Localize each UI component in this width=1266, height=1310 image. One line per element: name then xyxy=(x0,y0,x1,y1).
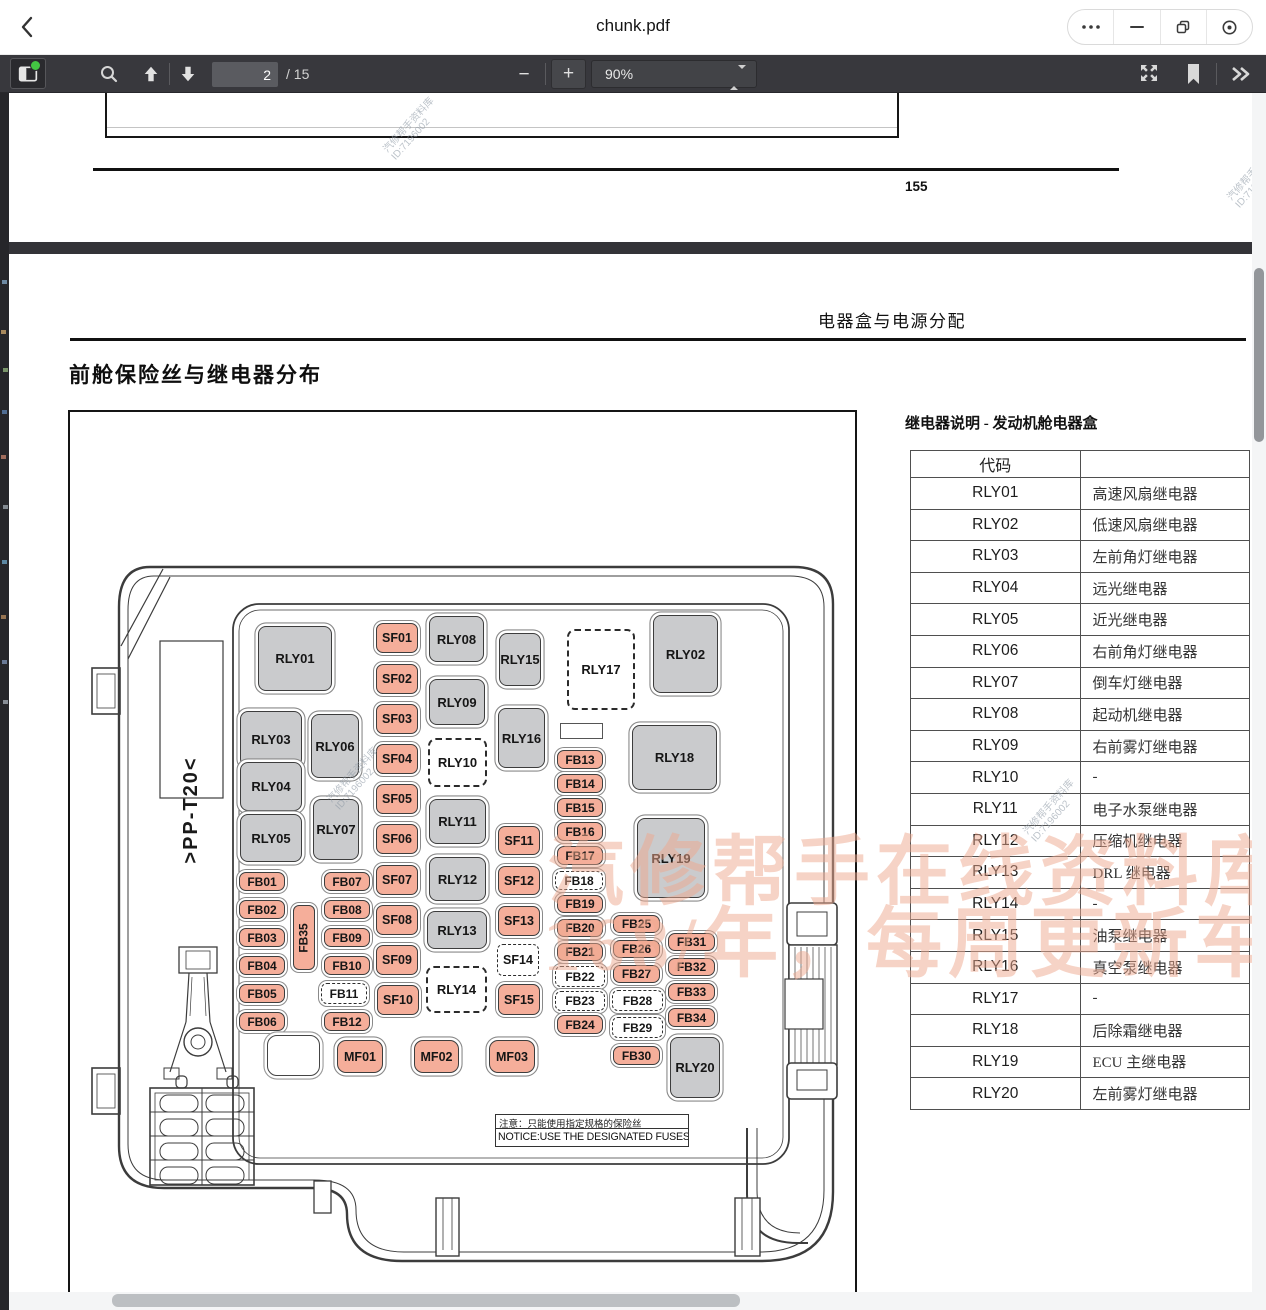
relay-table-row: RLY15油泵继电器 xyxy=(911,920,1250,952)
page1-table-remnant xyxy=(105,86,899,138)
arrow-up-icon xyxy=(142,64,160,84)
connector-side-label: >PP-T20< xyxy=(180,695,200,925)
relay-desc-cell: 电子水泵继电器 xyxy=(1080,793,1250,825)
toolbar-divider xyxy=(169,63,170,85)
zoom-out-button[interactable]: − xyxy=(511,62,537,87)
relay-table-row: RLY01高速风扇继电器 xyxy=(911,478,1250,510)
zoom-level-select[interactable]: 90% xyxy=(591,60,757,88)
relay-desc-cell: 高速风扇继电器 xyxy=(1080,478,1250,510)
relay-desc-cell: 近光继电器 xyxy=(1080,604,1250,636)
app-window: chunk.pdf xyxy=(0,0,1266,1310)
relay-desc-cell: 压缩机继电器 xyxy=(1080,825,1250,857)
search-button[interactable] xyxy=(97,62,121,86)
relay-desc-cell: 后除霜继电器 xyxy=(1080,1015,1250,1047)
relay-table-row: RLY10- xyxy=(911,762,1250,794)
vertical-scrollbar[interactable] xyxy=(1252,93,1266,1310)
page-total-label: / 15 xyxy=(286,66,309,82)
thumbnail-sidebar-sliver[interactable] xyxy=(0,93,9,1310)
chapter-header-rule xyxy=(70,338,1246,341)
notice-box: 注意：只能使用指定规格的保险丝 NOTICE:USE THE DESIGNATE… xyxy=(495,1114,689,1147)
relay-table-row: RLY17- xyxy=(911,983,1250,1015)
minimize-button[interactable] xyxy=(1113,10,1159,44)
relay-table-row: RLY06右前角灯继电器 xyxy=(911,635,1250,667)
relay-desc-cell: - xyxy=(1080,762,1250,794)
relay-table-row: RLY19ECU 主继电器 xyxy=(911,1046,1250,1078)
notification-dot xyxy=(30,60,41,71)
relay-code-cell: RLY11 xyxy=(911,793,1081,825)
relay-table-row: RLY16真空泵继电器 xyxy=(911,951,1250,983)
chapter-header: 电器盒与电源分配 xyxy=(818,307,966,332)
relay-desc-cell: - xyxy=(1080,983,1250,1015)
page1-page-number: 155 xyxy=(905,179,928,194)
relay-code-cell: RLY05 xyxy=(911,604,1081,636)
page-up-button[interactable] xyxy=(139,62,163,86)
focus-button[interactable] xyxy=(1206,10,1252,44)
relay-desc-cell: 低速风扇继电器 xyxy=(1080,509,1250,541)
relay-code-cell: RLY12 xyxy=(911,825,1081,857)
arrow-down-icon xyxy=(179,64,197,84)
relay-table-row: RLY12压缩机继电器 xyxy=(911,825,1250,857)
notice-text-en: NOTICE:USE THE DESIGNATED FUSES ONLY! xyxy=(496,1129,688,1143)
zoom-in-button[interactable]: + xyxy=(551,59,586,89)
relay-desc-cell: 起动机继电器 xyxy=(1080,699,1250,731)
relay-desc-cell: DRL 继电器 xyxy=(1080,857,1250,889)
relay-table-row: RLY04远光继电器 xyxy=(911,572,1250,604)
thumbnail-speck xyxy=(2,560,7,564)
relay-desc-cell: 左前角灯继电器 xyxy=(1080,541,1250,573)
page1-footer-rule xyxy=(93,168,1119,171)
relay-table-row: RLY18后除霜继电器 xyxy=(911,1015,1250,1047)
relay-code-cell: RLY16 xyxy=(911,951,1081,983)
relay-table-row: RLY05近光继电器 xyxy=(911,604,1250,636)
more-tools-button[interactable] xyxy=(1228,62,1254,86)
vertical-scrollbar-thumb[interactable] xyxy=(1254,268,1264,442)
relay-table-title: 继电器说明 - 发动机舱电器盒 xyxy=(905,412,1098,433)
fullscreen-arrows-icon xyxy=(1139,63,1159,83)
relay-desc-cell: ECU 主继电器 xyxy=(1080,1046,1250,1078)
page-down-button[interactable] xyxy=(176,62,200,86)
thumbnail-speck xyxy=(3,368,8,372)
relay-table-row: RLY11电子水泵继电器 xyxy=(911,793,1250,825)
bookmark-button[interactable] xyxy=(1183,61,1203,86)
relay-table-row: RLY08起动机继电器 xyxy=(911,699,1250,731)
bookmark-icon xyxy=(1186,63,1201,85)
thumbnail-speck xyxy=(2,660,7,664)
relay-table-col1-header: 代码 xyxy=(911,451,1081,478)
relay-desc-cell: - xyxy=(1080,888,1250,920)
minimize-icon xyxy=(1130,25,1144,29)
relay-desc-cell: 右前雾灯继电器 xyxy=(1080,730,1250,762)
more-dots-icon xyxy=(1080,23,1102,31)
select-spinner-icon xyxy=(730,69,746,87)
double-chevron-icon xyxy=(1230,65,1252,83)
restore-button[interactable] xyxy=(1160,10,1206,44)
search-icon xyxy=(99,64,119,84)
relay-code-cell: RLY03 xyxy=(911,541,1081,573)
relay-desc-cell: 倒车灯继电器 xyxy=(1080,667,1250,699)
relay-table-row: RLY20左前雾灯继电器 xyxy=(911,1078,1250,1110)
relay-code-cell: RLY02 xyxy=(911,509,1081,541)
relay-code-cell: RLY04 xyxy=(911,572,1081,604)
thumbnail-speck xyxy=(2,280,7,284)
thumbnail-speck xyxy=(3,505,8,509)
relay-desc-cell: 油泵继电器 xyxy=(1080,920,1250,952)
relay-table-col2-header xyxy=(1080,451,1250,478)
relay-table-row: RLY02低速风扇继电器 xyxy=(911,509,1250,541)
relay-code-cell: RLY01 xyxy=(911,478,1081,510)
relay-code-cell: RLY10 xyxy=(911,762,1081,794)
relay-code-cell: RLY18 xyxy=(911,1015,1081,1047)
thumbnail-speck xyxy=(1,455,6,459)
thumbnail-speck xyxy=(1,615,6,619)
toolbar-divider xyxy=(1216,63,1217,85)
horizontal-scrollbar[interactable] xyxy=(9,1292,1252,1310)
relay-desc-cell: 左前雾灯继电器 xyxy=(1080,1078,1250,1110)
section-title: 前舱保险丝与继电器分布 xyxy=(69,359,322,389)
relay-desc-cell: 真空泵继电器 xyxy=(1080,951,1250,983)
relay-code-cell: RLY14 xyxy=(911,888,1081,920)
thumbnail-speck xyxy=(2,410,7,414)
focus-circle-icon xyxy=(1221,19,1238,36)
relay-table-header-row: 代码 xyxy=(911,451,1250,478)
window-controls xyxy=(1067,9,1253,45)
page-separator xyxy=(9,242,1252,254)
relay-code-cell: RLY19 xyxy=(911,1046,1081,1078)
relay-table-row: RLY09右前雾灯继电器 xyxy=(911,730,1250,762)
relay-table-row: RLY03左前角灯继电器 xyxy=(911,541,1250,573)
more-options-button[interactable] xyxy=(1068,10,1113,44)
horizontal-scrollbar-thumb[interactable] xyxy=(112,1294,740,1307)
sidebar-toggle-button[interactable] xyxy=(10,58,46,89)
restore-icon xyxy=(1175,19,1191,35)
relay-code-cell: RLY13 xyxy=(911,857,1081,889)
relay-code-cell: RLY20 xyxy=(911,1078,1081,1110)
relay-code-cell: RLY15 xyxy=(911,920,1081,952)
page1-table-line xyxy=(107,127,897,128)
relay-code-cell: RLY08 xyxy=(911,699,1081,731)
page-number-input[interactable] xyxy=(212,62,278,87)
relay-code-cell: RLY17 xyxy=(911,983,1081,1015)
relay-desc-cell: 远光继电器 xyxy=(1080,572,1250,604)
relay-code-cell: RLY07 xyxy=(911,667,1081,699)
relay-table: 代码 RLY01高速风扇继电器RLY02低速风扇继电器RLY03左前角灯继电器R… xyxy=(910,450,1250,1110)
thumbnail-speck xyxy=(1,330,6,334)
relay-table-row: RLY14- xyxy=(911,888,1250,920)
relay-table-row: RLY13DRL 继电器 xyxy=(911,857,1250,889)
presentation-mode-button[interactable] xyxy=(1137,61,1161,85)
relay-code-cell: RLY06 xyxy=(911,635,1081,667)
titlebar: chunk.pdf xyxy=(0,0,1266,55)
relay-table-row: RLY07倒车灯继电器 xyxy=(911,667,1250,699)
thumbnail-speck xyxy=(3,700,8,704)
relay-desc-cell: 右前角灯继电器 xyxy=(1080,635,1250,667)
relay-code-cell: RLY09 xyxy=(911,730,1081,762)
notice-text-cn: 注意：只能使用指定规格的保险丝 xyxy=(496,1115,688,1129)
pdf-toolbar: / 15 − + 90% xyxy=(0,55,1266,93)
toolbar-divider xyxy=(545,63,546,85)
zoom-level-value: 90% xyxy=(605,66,633,82)
